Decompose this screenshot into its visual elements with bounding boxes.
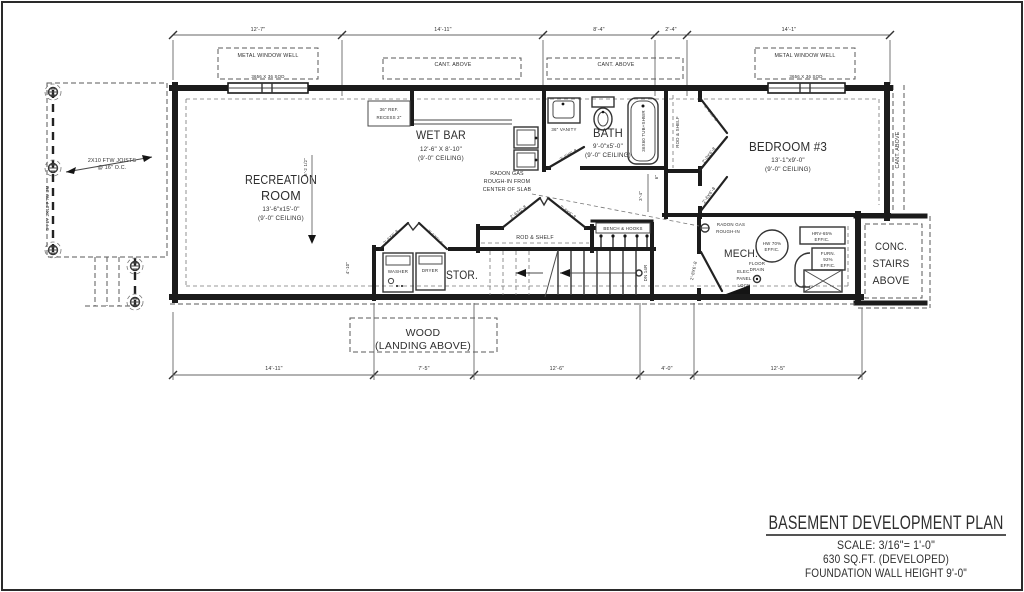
dryer-label: DRYER (422, 268, 438, 273)
stairs: DN 14R (490, 250, 648, 297)
beam-note: 3 PLY 2X10 FTW BM (45, 185, 50, 230)
window-size-label-1: 3656 X 36 SOD (251, 74, 284, 79)
title-block: BASEMENT DEVELOPMENT PLAN SCALE: 3/16"= … (766, 513, 1006, 580)
door-label: 2'-6X6'-8 (426, 229, 444, 246)
conc-stairs-label-3: ABOVE (873, 275, 910, 287)
door-label: 2'-0X6'-8 (701, 146, 717, 164)
coat-hooks-icon (599, 234, 648, 247)
fridge-label-1: 36" REF. (380, 107, 399, 112)
hw-label-1: HW 70% (763, 241, 782, 246)
room-ceiling: (9'-0" CEILING) (258, 215, 304, 222)
mech-room: RADON GAS ROUGH-IN MECH. HW 70% EFFIC. H… (700, 222, 845, 294)
room-ceiling: (9'-0" CEILING) (585, 152, 631, 159)
bench-hooks-label: BENCH & HOOKS (603, 226, 642, 231)
elec-panel-label-2: PANEL (736, 276, 751, 281)
door-label: 2'-6X6'-8 (382, 228, 400, 245)
dim-interior: 8'-2 1/2" (303, 158, 308, 176)
dim-bot-4: 4'-0" (661, 366, 673, 372)
dim-bot-1: 14'-11" (265, 366, 282, 372)
room-size: 12'-6" X 8'-10" (420, 146, 462, 153)
radon-rough-in-icon (700, 224, 710, 232)
wood-landing-label-1: WOOD (406, 327, 441, 339)
radon-mech-label-1: RADON GAS (717, 222, 745, 227)
dim-bot-5: 12'-5" (771, 366, 786, 372)
dim-interior: 4'-10" (345, 262, 350, 275)
wet-bar: 36" REF. RECESS 2" WET BAR 12'-6" X 8'-1… (368, 101, 538, 170)
door-label: 2'-0X6'-8 (703, 104, 719, 122)
floor-drain-icon (754, 276, 761, 283)
cant-above-label-2: CANT. ABOVE (598, 62, 635, 68)
floor-drain-label-2: DRAIN (750, 267, 765, 272)
recreation-room-label: RECREATION ROOM 13'-6"x15'-0" (9'-0" CEI… (245, 155, 317, 244)
fridge-label-2: RECESS 2" (376, 115, 401, 120)
washer-label: WASHER (388, 269, 408, 274)
tub-label: 36X60 TUB+SHWR (641, 110, 646, 151)
door-label: 2'-6X6'-8 (559, 204, 578, 220)
room-size: 13'-1"x9'-0" (771, 157, 805, 164)
dim-interior: 3'-4" (638, 191, 643, 201)
rod-shelf-label: ROD & SHELF (516, 235, 554, 241)
dim-bot-2: 7'-5" (418, 366, 430, 372)
dim-bot-3: 12'-6" (550, 366, 565, 372)
hrv-label-2: EFFIC. (814, 237, 829, 242)
door-label: 2'-6X6'-8 (509, 204, 528, 220)
furn-label-2: 92% (823, 257, 832, 262)
room-name: WET BAR (416, 128, 466, 142)
dim-top-4: 2'-4" (665, 27, 677, 33)
hall-closet: ROD & SHELF BENCH & HOOKS (481, 223, 650, 247)
hot-water-tank-icon: HW 70% EFFIC. (756, 230, 788, 262)
drawing-wall-height: FOUNDATION WALL HEIGHT 9'-0" (805, 566, 967, 580)
hrv-label-1: HRV-65% (812, 231, 833, 236)
stair-direction-label: DN 14R (643, 265, 648, 282)
hw-label-2: EFFIC. (764, 247, 779, 252)
room-size: 13'-6"x15'-0" (262, 206, 299, 213)
window-size-label-2: 3656 X 36 SOD (789, 74, 822, 79)
bar-sink-icon (514, 127, 538, 170)
deck-and-piles: 2X10 FTW JOISTS @ 16" O.C. 3 PLY 2X10 FT… (45, 83, 167, 310)
drawing-scale: SCALE: 3/16"= 1'-0" (837, 538, 935, 552)
room-ceiling: (9'-0" CEILING) (765, 166, 811, 173)
cant-above-label-1: CANT. ABOVE (435, 62, 472, 68)
room-name: BATH (593, 126, 623, 140)
dim-interior: 6" (654, 175, 659, 180)
metal-window-well-label-2: METAL WINDOW WELL (774, 53, 835, 59)
window-icon (228, 83, 308, 93)
vanity-icon (548, 98, 580, 123)
room-name: MECH. (724, 248, 758, 260)
furn-label-3: EFFIC. (820, 263, 835, 268)
window-icon (768, 83, 845, 93)
radon-mech-label-2: ROUGH-IN (716, 229, 740, 234)
wood-landing: WOOD (LANDING ABOVE) (350, 318, 497, 352)
elec-panel-label-1: ELEC. (737, 269, 751, 274)
vanity-label: 36" VANITY (551, 127, 576, 132)
radon-slab-label-2: ROUGH-IN FROM (484, 179, 530, 185)
metal-window-well-label-1: METAL WINDOW WELL (237, 53, 298, 59)
floor-drain-label-1: FLOOR (749, 261, 765, 266)
radon-slab-label-1: RADON GAS (490, 171, 524, 177)
furnace-icon: FURN. 92% EFFIC. (795, 248, 845, 292)
room-name: BEDROOM #3 (749, 139, 827, 154)
dim-top-2: 14'-11" (434, 27, 451, 33)
conc-stairs-label-2: STAIRS (873, 258, 910, 270)
drawing-area: 630 SQ.FT. (DEVELOPED) (823, 552, 949, 566)
dim-top-3: 8'-4" (593, 27, 605, 33)
dim-top-1: 12'-7" (251, 27, 266, 33)
hrv-icon: HRV-65% EFFIC. (800, 227, 845, 244)
furn-label-1: FURN. (821, 251, 835, 256)
basement-plan-drawing: 12'-7" 14'-11" 8'-4" 2'-4" 14'-1" 14'-11… (0, 0, 1024, 592)
door-label: 2'-8X6'-8 (689, 260, 698, 280)
room-size: 9'-0"x5'-0" (593, 143, 623, 150)
room-name: STOR. (446, 268, 478, 282)
radon-slab-label-3: CENTER OF SLAB (483, 187, 532, 193)
cant-above-label-3: CANT. ABOVE (895, 131, 901, 168)
drawing-title: BASEMENT DEVELOPMENT PLAN (769, 513, 1004, 534)
screw-pile-icon (127, 294, 143, 310)
wood-landing-label-2: (LANDING ABOVE) (375, 340, 471, 352)
blueprint-page: 12'-7" 14'-11" 8'-4" 2'-4" 14'-1" 14'-11… (0, 0, 1024, 592)
room-ceiling: (9'-0" CEILING) (418, 155, 464, 162)
exterior-stairs: CONC. STAIRS ABOVE (865, 224, 922, 298)
bottom-dimensions: 14'-11" 7'-5" 12'-6" 4'-0" 12'-5" (169, 303, 866, 380)
door-label: 2'-6X6'-8 (559, 148, 578, 162)
conc-stairs-label-1: CONC. (875, 241, 907, 253)
room-name: ROOM (261, 188, 301, 203)
dim-top-5: 14'-1" (782, 27, 797, 33)
rod-shelf-label: ROD & SHELF (675, 116, 680, 148)
